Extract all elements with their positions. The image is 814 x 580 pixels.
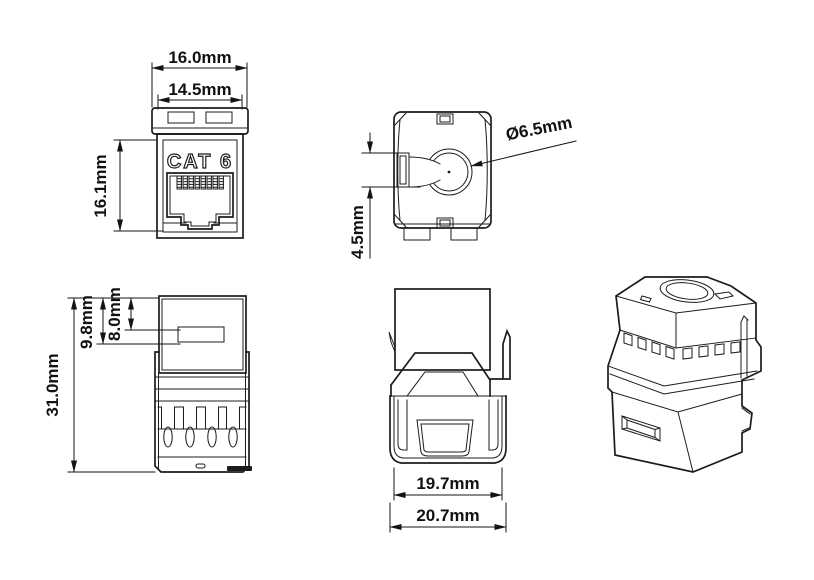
technical-drawing-page: 16.0mm 14.5mm 16.1mm CAT 6	[0, 0, 814, 580]
dimension-label: 19.7mm	[416, 474, 479, 493]
technical-drawing: 16.0mm 14.5mm 16.1mm CAT 6	[0, 0, 814, 580]
dimension-label: 4.5mm	[348, 205, 367, 259]
dimension-label: 20.7mm	[416, 506, 479, 525]
dimension-label: 16.0mm	[168, 48, 231, 67]
dimension-label: 31.0mm	[43, 353, 62, 416]
dimension-label: 9.8mm	[77, 295, 96, 349]
side-bottom-tab	[227, 466, 252, 471]
dimension-label: 16.1mm	[91, 154, 110, 217]
dimension-label: 8.0mm	[105, 287, 124, 341]
dimension-label: 14.5mm	[168, 80, 231, 99]
hole-center-mark	[448, 171, 451, 174]
cat6-face-label: CAT 6	[167, 151, 233, 173]
